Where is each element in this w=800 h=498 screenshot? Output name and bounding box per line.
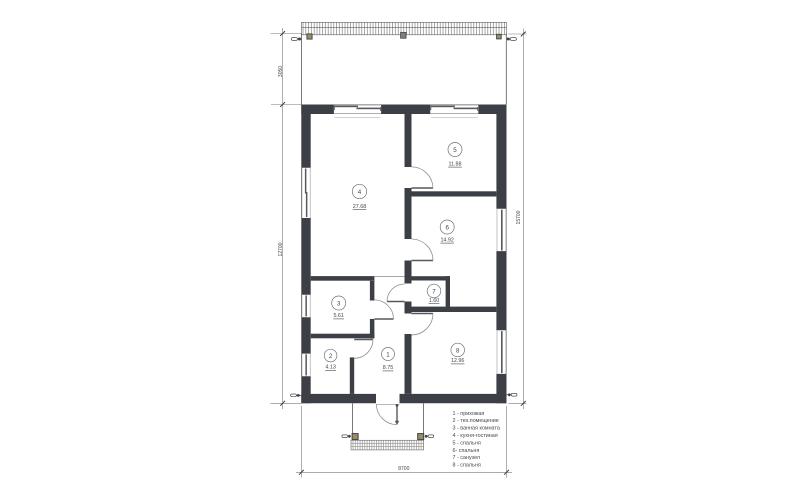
svg-text:11.88: 11.88 — [448, 161, 461, 167]
svg-text:5 - спальня: 5 - спальня — [453, 440, 481, 446]
svg-text:8700: 8700 — [398, 466, 409, 472]
svg-text:8 - спальня: 8 - спальня — [453, 463, 481, 469]
svg-text:8.75: 8.75 — [383, 365, 394, 371]
svg-text:1 - прихожая: 1 - прихожая — [453, 411, 485, 417]
svg-text:5.61: 5.61 — [333, 313, 344, 319]
svg-text:2 - тех.помещение: 2 - тех.помещение — [453, 418, 499, 424]
svg-text:2: 2 — [329, 353, 333, 360]
svg-text:27.68: 27.68 — [353, 204, 367, 210]
svg-text:12.96: 12.96 — [451, 358, 465, 364]
svg-text:3: 3 — [337, 301, 341, 308]
svg-text:8: 8 — [456, 348, 460, 355]
svg-text:12700: 12700 — [278, 242, 284, 256]
svg-text:7: 7 — [432, 289, 436, 296]
svg-text:14.92: 14.92 — [440, 237, 454, 243]
svg-text:5: 5 — [453, 147, 457, 154]
svg-text:1: 1 — [386, 352, 390, 359]
svg-text:6- спальня: 6- спальня — [453, 448, 480, 454]
svg-text:1.60: 1.60 — [429, 298, 440, 304]
svg-text:4.13: 4.13 — [325, 365, 336, 371]
svg-text:15700: 15700 — [516, 210, 522, 224]
svg-text:3 - ванная комната: 3 - ванная комната — [453, 426, 500, 432]
svg-text:6: 6 — [445, 225, 449, 232]
svg-text:7 - санузел: 7 - санузел — [453, 455, 481, 461]
svg-text:3050: 3050 — [278, 66, 284, 77]
svg-text:4 - кухня-гостиная: 4 - кухня-гостиная — [453, 433, 498, 439]
svg-text:4: 4 — [358, 189, 362, 196]
